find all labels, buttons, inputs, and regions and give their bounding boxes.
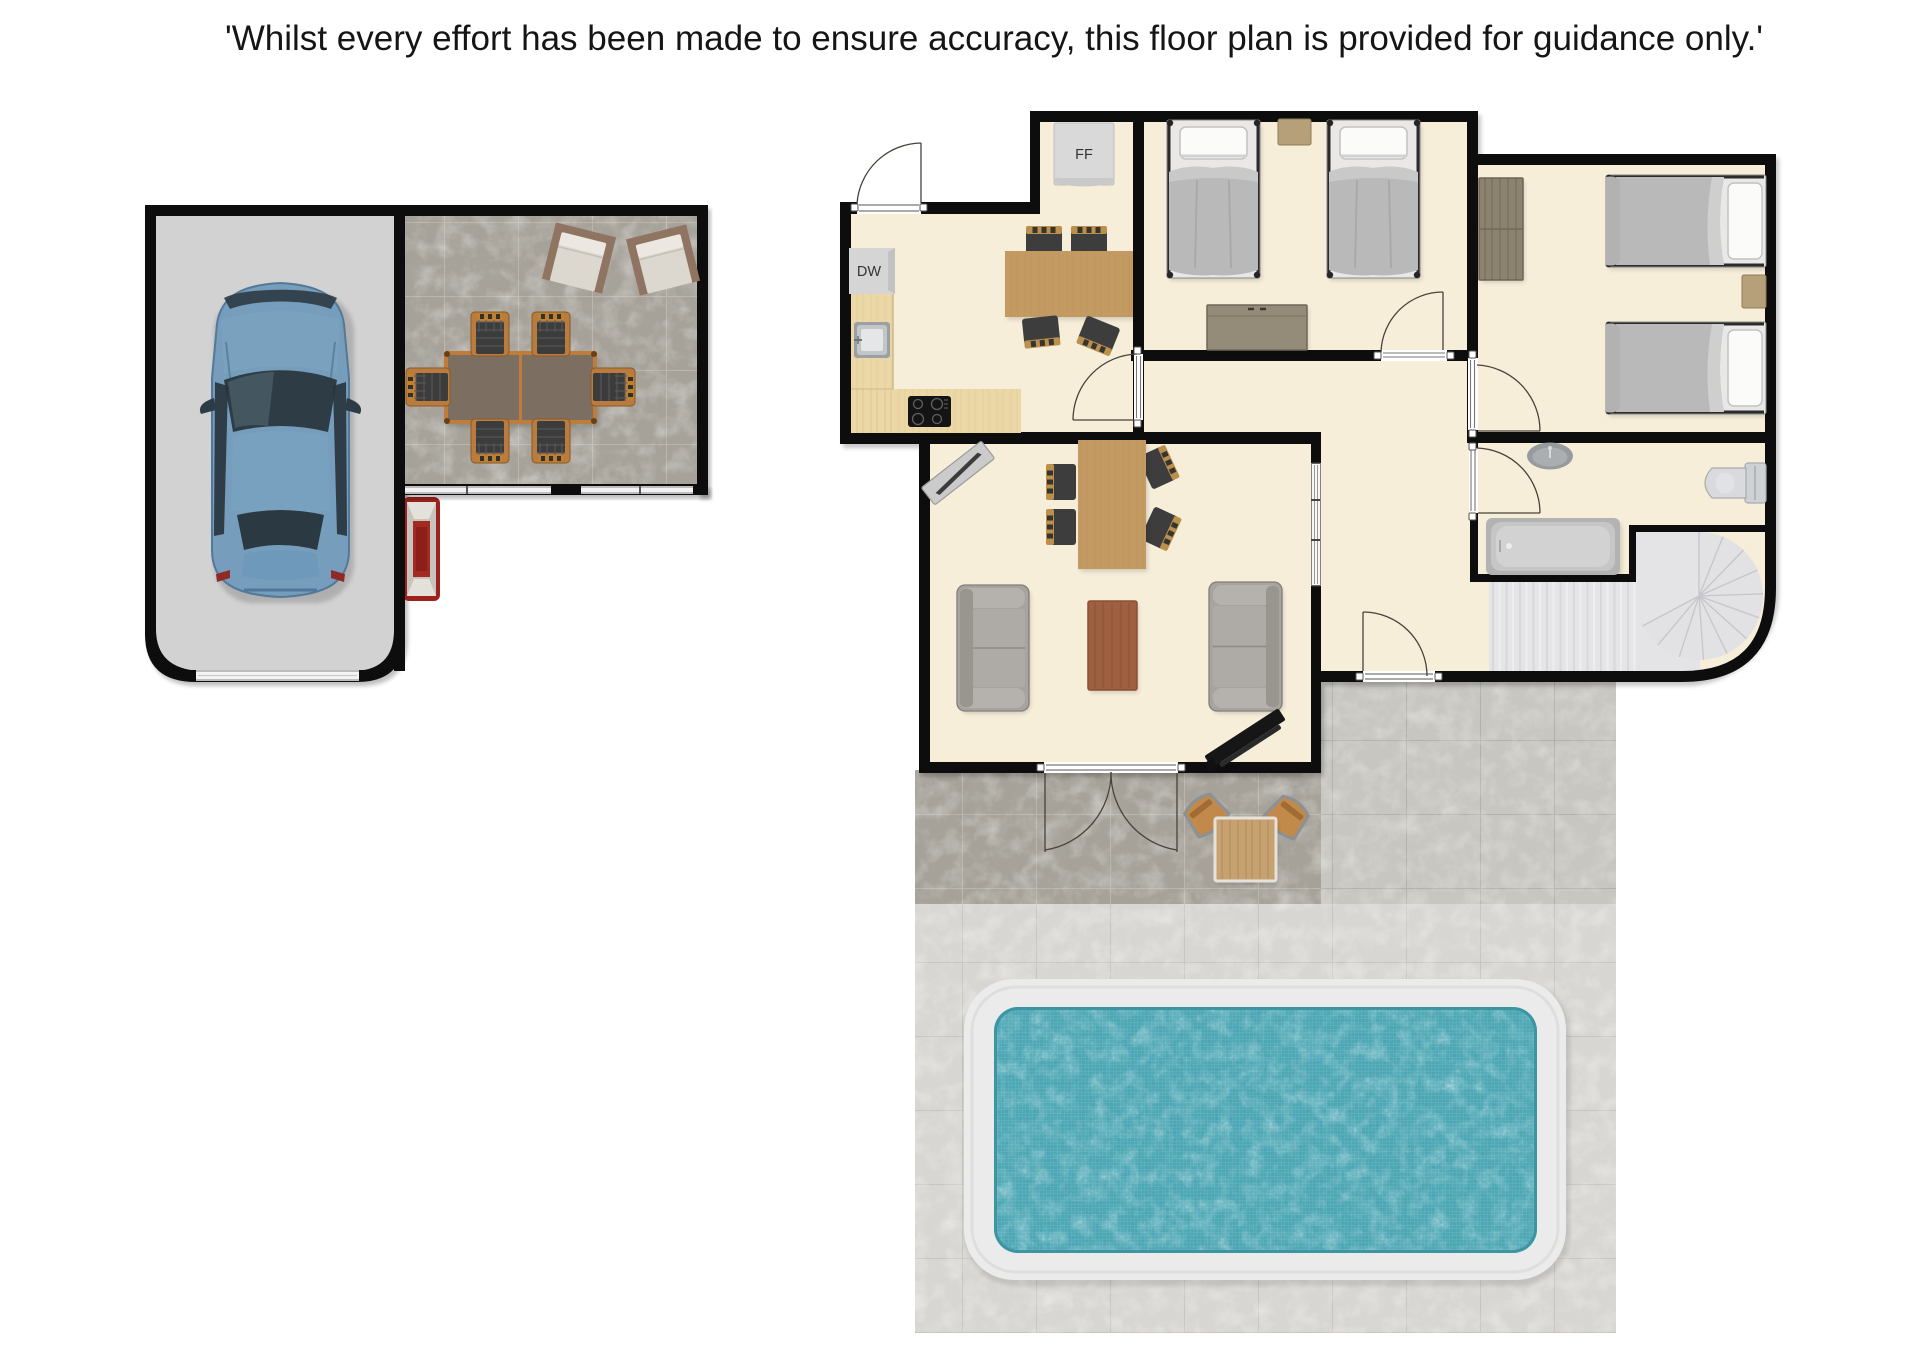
svg-text:FF: FF (1075, 147, 1093, 163)
svg-text:DW: DW (857, 264, 881, 280)
svg-text:'Whilst every effort has been: 'Whilst every effort has been made to en… (225, 19, 1763, 58)
